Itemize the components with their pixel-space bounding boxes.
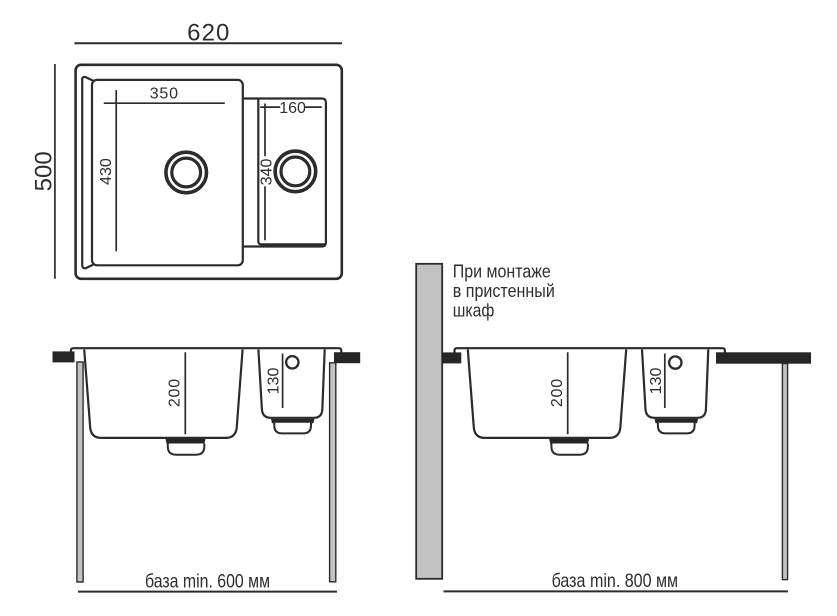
svg-text:200: 200 — [549, 378, 566, 407]
svg-text:130: 130 — [648, 368, 665, 395]
svg-text:160: 160 — [279, 100, 306, 117]
svg-text:шкаф: шкаф — [453, 300, 495, 320]
svg-text:200: 200 — [166, 378, 183, 407]
svg-text:350: 350 — [150, 86, 179, 103]
svg-text:500: 500 — [31, 151, 58, 191]
svg-text:При монтаже: При монтаже — [453, 262, 551, 282]
svg-text:340: 340 — [259, 159, 276, 186]
svg-text:в пристенный: в пристенный — [453, 281, 555, 301]
svg-text:430: 430 — [98, 158, 115, 185]
svg-text:база min. 600 мм: база min. 600 мм — [145, 571, 270, 593]
svg-text:620: 620 — [187, 19, 230, 46]
svg-text:130: 130 — [265, 368, 282, 395]
svg-text:база min. 800 мм: база min. 800 мм — [552, 570, 679, 592]
